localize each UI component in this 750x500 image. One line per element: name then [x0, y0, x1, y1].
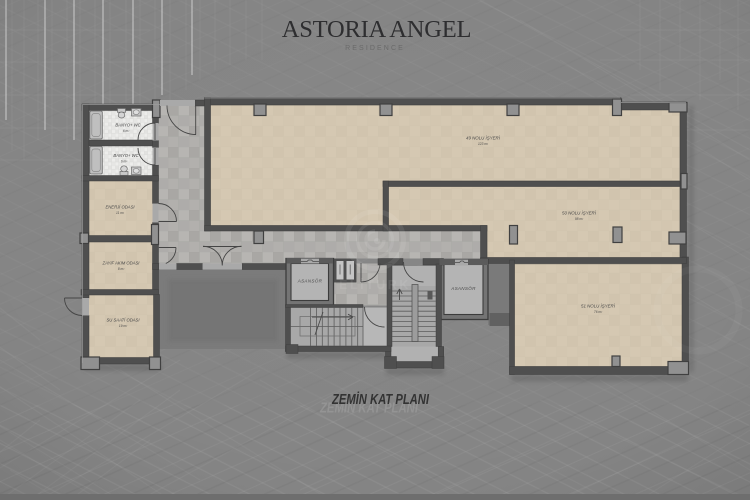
svg-text:98 m²: 98 m²	[575, 217, 584, 221]
svg-text:BANYO+ WC: BANYO+ WC	[115, 123, 141, 128]
svg-text:8 m²: 8 m²	[118, 267, 125, 271]
svg-text:RESIDENCE: RESIDENCE	[345, 45, 405, 52]
svg-text:76 m²: 76 m²	[594, 310, 603, 314]
svg-text:ELİTURK: ELİTURK	[339, 277, 411, 292]
svg-text:6 m²: 6 m²	[123, 129, 130, 133]
svg-text:ZEMİN KAT PLANI: ZEMİN KAT PLANI	[331, 391, 430, 408]
svg-text:ZAYIF AKIM ODASI: ZAYIF AKIM ODASI	[102, 261, 141, 266]
svg-text:BANYO+ WC: BANYO+ WC	[113, 153, 139, 158]
svg-text:ENERJİ ODASI: ENERJİ ODASI	[105, 205, 135, 210]
svg-text:ASANSÖR: ASANSÖR	[450, 285, 476, 291]
svg-text:6 m²: 6 m²	[121, 160, 128, 164]
svg-text:19 m²: 19 m²	[119, 324, 128, 328]
svg-text:123 m²: 123 m²	[478, 142, 489, 146]
svg-text:51 NOLU İŞYERİ: 51 NOLU İŞYERİ	[581, 304, 616, 309]
svg-text:50 NOLU İŞYERİ: 50 NOLU İŞYERİ	[562, 211, 597, 216]
svg-text:SU SAATİ ODASI: SU SAATİ ODASI	[107, 318, 141, 323]
svg-text:ASTORIA ANGEL: ASTORIA ANGEL	[282, 16, 472, 43]
svg-text:49 NOLU İŞYERİ: 49 NOLU İŞYERİ	[466, 136, 501, 141]
svg-text:11 m²: 11 m²	[116, 211, 125, 215]
svg-text:ASANSÖR: ASANSÖR	[297, 278, 323, 284]
